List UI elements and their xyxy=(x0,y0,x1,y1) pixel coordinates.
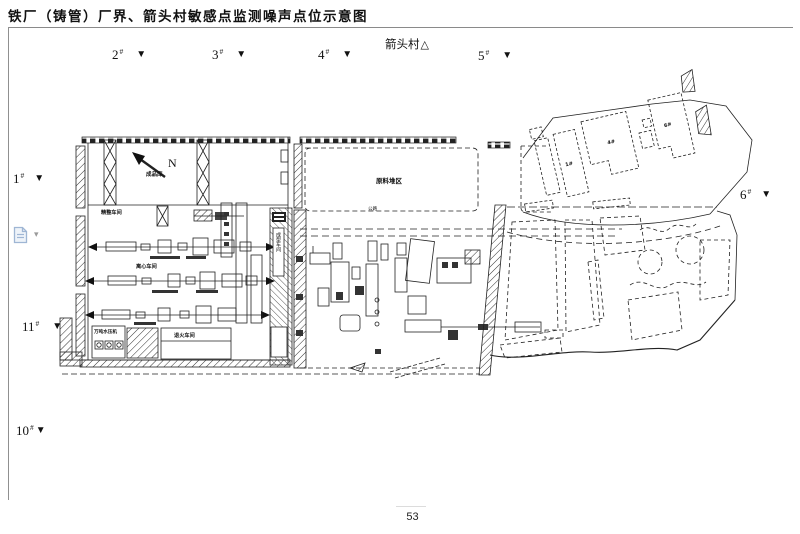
site-plan-map: N 成品库 xyxy=(0,0,800,534)
workshop-line1-label: 精整车间 xyxy=(101,208,122,216)
press-room: 万吨水压机 xyxy=(92,326,125,358)
north-label: N xyxy=(168,156,177,170)
farmland-area xyxy=(490,207,737,358)
tall-buildings xyxy=(221,203,262,323)
page-number: 53 xyxy=(370,511,455,523)
document-page: 铁厂（铸管）厂界、箭头村敏感点监测噪声点位示意图 箭头村 △ 2# ▼ 3# ▼… xyxy=(0,0,800,534)
inner-road-strip xyxy=(294,210,306,368)
main-road xyxy=(300,229,622,236)
gallery-label: 成型车间 xyxy=(275,231,281,253)
compass-caption: 成品库 xyxy=(146,170,163,178)
workshop-line3-label: 退火车间 xyxy=(174,331,195,339)
production-line-3 xyxy=(85,306,270,325)
stockyard-zone: 原料堆区 公路 xyxy=(294,137,551,212)
gallery-strip: 成型车间 xyxy=(270,208,292,365)
stockyard-label: 原料堆区 xyxy=(376,176,403,185)
annealing-shop: 退火车间 xyxy=(161,328,231,359)
factory-area: N 成品库 xyxy=(60,137,290,367)
residential-cluster: 1# 4# 6# xyxy=(507,68,752,243)
press-room-label: 万吨水压机 xyxy=(93,328,117,335)
footer-rule xyxy=(396,506,426,507)
building-number: 1# xyxy=(565,161,574,169)
road-label: 公路 xyxy=(368,205,378,212)
production-line-2 xyxy=(85,272,275,293)
north-arrow: N 成品库 xyxy=(132,152,177,178)
building-number: 4# xyxy=(607,139,616,147)
building-number: 6# xyxy=(663,122,672,130)
workshop-line2-label: 离心车间 xyxy=(136,262,157,270)
